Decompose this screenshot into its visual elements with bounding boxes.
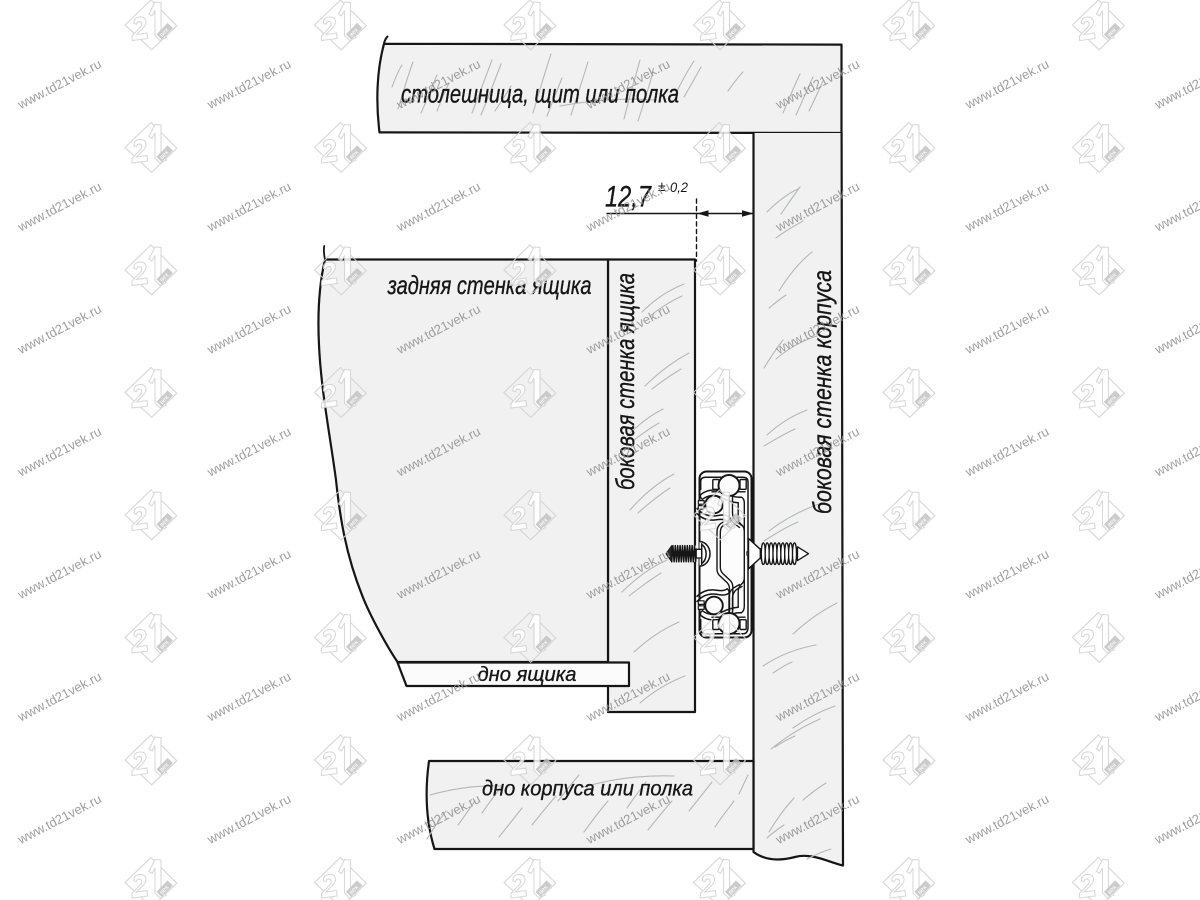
svg-text:задняя стенка ящика: задняя стенка ящика <box>387 270 592 300</box>
svg-text:дно ящика: дно ящика <box>478 663 577 686</box>
svg-text:боковая стенка корпуса: боковая стенка корпуса <box>807 270 837 514</box>
svg-text:0,2: 0,2 <box>670 179 688 195</box>
